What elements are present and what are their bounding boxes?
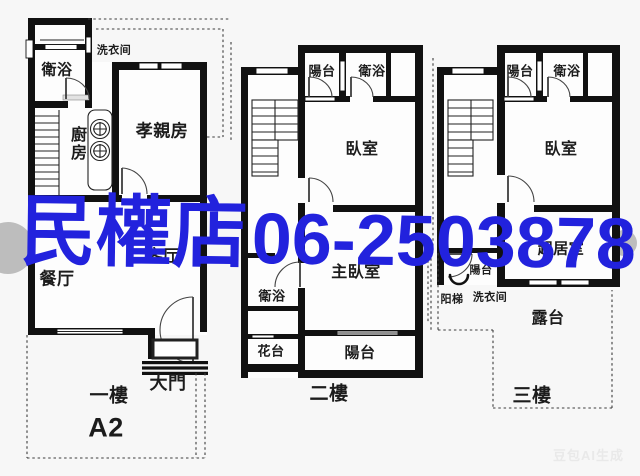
ai-generated-badge: 豆包AI生成	[553, 445, 624, 464]
watermark-store-text: 民權店	[19, 187, 248, 278]
agency-watermark: 民權店 06-2503878	[0, 0, 640, 476]
watermark-phone-text: 06-2503878	[251, 199, 636, 284]
floorplan-image: 洗衣间 衛浴 廚房 孝親房 客厅 餐厅 大門 一樓 A2 陽台 衛浴 臥室 主臥…	[0, 0, 640, 476]
